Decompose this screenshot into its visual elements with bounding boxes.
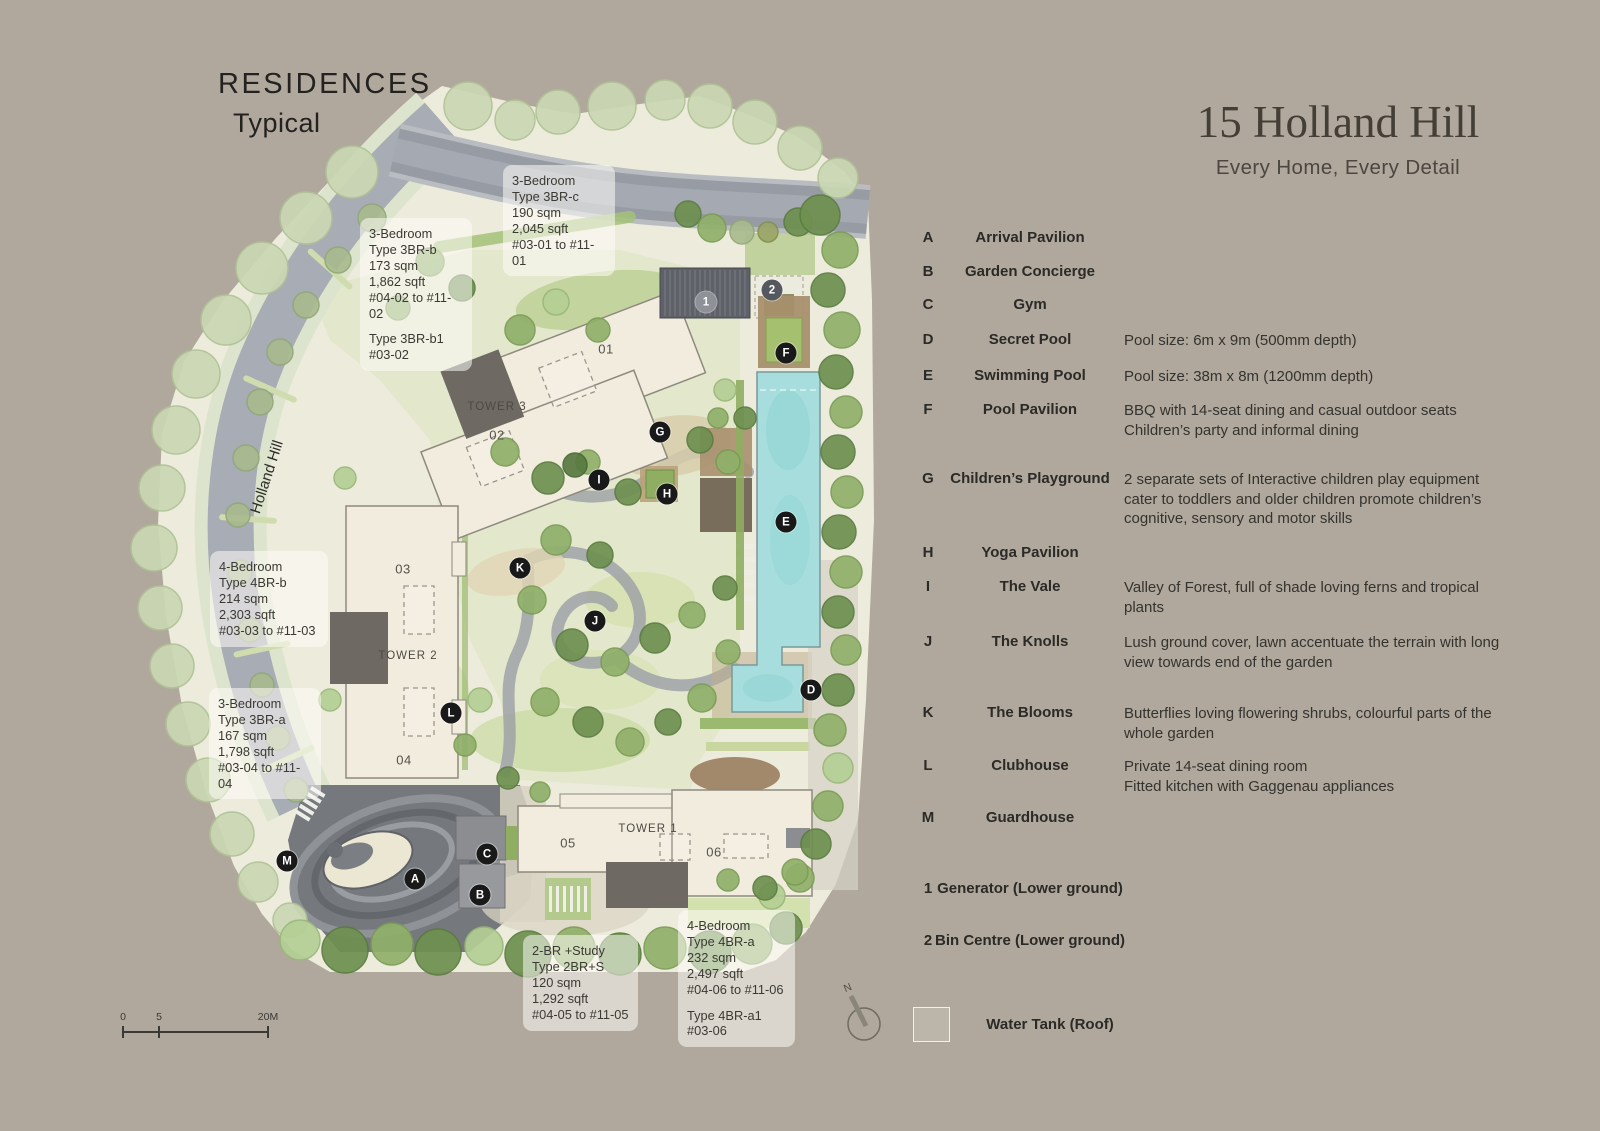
tree-icon (322, 927, 368, 973)
tree-icon (675, 201, 701, 227)
tree-icon (831, 635, 861, 665)
tree-icon (830, 556, 862, 588)
tree-icon (713, 576, 737, 600)
brand-logo: 15 Holland Hill (1190, 100, 1486, 145)
tree-icon (821, 435, 855, 469)
tree-icon (150, 644, 194, 688)
north-arrow-icon (830, 984, 894, 1048)
tree-icon (688, 684, 716, 712)
legend-description: Private 14-seat dining roomFitted kitche… (1124, 757, 1524, 796)
unit-callout-6: 4-BedroomType 4BR-a232 sqm2,497 sqft#04-… (678, 910, 795, 1047)
tower-2-building (330, 506, 466, 778)
map-marker-G: G (650, 422, 671, 443)
tree-icon (495, 100, 535, 140)
scale-tick (122, 1026, 124, 1038)
page-header: RESIDENCES Typical (218, 68, 432, 139)
unit-callout-2: 3-BedroomType 3BR-b173 sqm1,862 sqft#04-… (360, 218, 472, 371)
hedge (506, 826, 517, 860)
tree-icon (325, 247, 351, 273)
tree-icon (758, 222, 778, 242)
tree-icon (716, 640, 740, 664)
tree-icon (280, 192, 332, 244)
tree-icon (811, 273, 845, 307)
tree-icon (824, 312, 860, 348)
legend-description: Lush ground cover, lawn accentuate the t… (1124, 633, 1524, 672)
tree-icon (717, 869, 739, 891)
unit-number: 02 (489, 428, 504, 443)
tree-icon (293, 292, 319, 318)
tree-icon (415, 929, 461, 975)
tower-label: TOWER 3 (467, 401, 526, 413)
unit-number: 01 (598, 342, 613, 357)
map-marker-K: K (510, 558, 531, 579)
legend-name: Clubhouse (930, 757, 1130, 774)
legend-name: Bin Centre (Lower ground) (930, 932, 1130, 949)
crosswalk (545, 878, 591, 920)
map-marker-F: F (776, 343, 797, 364)
callout-line (687, 998, 786, 1008)
tree-icon (444, 82, 492, 130)
tree-icon (530, 782, 550, 802)
tree-icon (698, 214, 726, 242)
callout-line: #03-06 (687, 1023, 786, 1039)
tree-icon (573, 707, 603, 737)
tree-icon (172, 350, 220, 398)
callout-line: #03-01 to #11-01 (512, 237, 606, 269)
callout-line: 232 sqm (687, 950, 786, 966)
tree-icon (138, 586, 182, 630)
tree-icon (280, 920, 320, 960)
tree-icon (813, 791, 843, 821)
tree-icon (201, 295, 251, 345)
callout-line: #04-02 to #11-02 (369, 290, 463, 322)
legend-name: Garden Concierge (930, 263, 1130, 280)
legend-description: BBQ with 14-seat dining and casual outdo… (1124, 401, 1524, 440)
callout-line: 2,045 sqft (512, 221, 606, 237)
map-marker-B: B (470, 885, 491, 906)
tree-icon (166, 702, 210, 746)
tree-icon (131, 525, 177, 571)
tree-icon (334, 467, 356, 489)
tree-icon (556, 629, 588, 661)
tree-icon (730, 220, 754, 244)
scale-tick (267, 1026, 269, 1038)
tree-icon (543, 289, 569, 315)
tree-icon (465, 927, 503, 965)
lawn (745, 233, 815, 275)
tree-icon (655, 709, 681, 735)
callout-line: Type 2BR+S (532, 959, 629, 975)
callout-line: #03-04 to #11-04 (218, 760, 312, 792)
callout-line: 173 sqm (369, 258, 463, 274)
legend-description: Butterflies loving flowering shrubs, col… (1124, 704, 1524, 743)
tree-icon (532, 462, 564, 494)
scale-label-20m: 20M (258, 1011, 278, 1023)
legend-name: Arrival Pavilion (930, 229, 1130, 246)
callout-line: Type 3BR-b1 (369, 331, 463, 347)
callout-line: 4-Bedroom (687, 918, 786, 934)
map-marker-M: M (277, 851, 298, 872)
callout-line: 120 sqm (532, 975, 629, 991)
tree-icon (688, 84, 732, 128)
tree-icon (152, 406, 200, 454)
legend-name: Children’s Playground (930, 470, 1130, 487)
legend-name: Yoga Pavilion (930, 544, 1130, 561)
tree-icon (233, 445, 259, 471)
tree-icon (139, 465, 185, 511)
tree-icon (247, 389, 273, 415)
legend-description: 2 separate sets of Interactive children … (1124, 470, 1524, 529)
water-tank-label: Water Tank (Roof) (950, 1016, 1150, 1033)
tree-icon (497, 767, 519, 789)
tree-icon (679, 602, 705, 628)
tree-icon (645, 80, 685, 120)
callout-line: Type 3BR-c (512, 189, 606, 205)
unit-number: 04 (396, 753, 411, 768)
unit-callout-4: 3-BedroomType 3BR-a167 sqm1,798 sqft#03-… (209, 688, 321, 799)
tree-icon (586, 318, 610, 342)
callout-line: 3-Bedroom (218, 696, 312, 712)
tree-icon (588, 82, 636, 130)
unit-callout-5: 2-BR +StudyType 2BR+S120 sqm1,292 sqft#0… (523, 935, 638, 1031)
page-title: RESIDENCES (218, 68, 432, 101)
unit-callout-3: 4-BedroomType 4BR-b214 sqm2,303 sqft#03-… (210, 551, 328, 647)
callout-line: 2,497 sqft (687, 966, 786, 982)
tree-icon (616, 728, 644, 756)
tree-icon (733, 100, 777, 144)
tree-icon (541, 525, 571, 555)
tree-icon (714, 379, 736, 401)
tree-icon (716, 450, 740, 474)
callout-line: 1,292 sqft (532, 991, 629, 1007)
callout-line: 167 sqm (218, 728, 312, 744)
map-marker-E: E (776, 512, 797, 533)
tree-icon (454, 734, 476, 756)
tree-icon (226, 503, 250, 527)
tree-icon (818, 158, 858, 198)
map-marker-D: D (801, 680, 822, 701)
tree-icon (236, 242, 288, 294)
map-marker-H: H (657, 484, 678, 505)
page: RESIDENCES Typical 15 Holland Hill Every… (0, 0, 1600, 1131)
tree-icon (778, 126, 822, 170)
tree-icon (830, 396, 862, 428)
tree-icon (531, 688, 559, 716)
tree-icon (822, 674, 854, 706)
callout-line: 214 sqm (219, 591, 319, 607)
legend-name: Swimming Pool (930, 367, 1130, 384)
callout-line: 1,862 sqft (369, 274, 463, 290)
tree-icon (801, 829, 831, 859)
tree-icon (319, 689, 341, 711)
callout-line: Type 4BR-a (687, 934, 786, 950)
tree-icon (615, 479, 641, 505)
legend-name: The Knolls (930, 633, 1130, 650)
compass: N (830, 984, 894, 1048)
callout-line: 3-Bedroom (369, 226, 463, 242)
tree-icon (819, 355, 853, 389)
tree-icon (371, 923, 413, 965)
callout-line: 190 sqm (512, 205, 606, 221)
legend-description: Pool size: 38m x 8m (1200mm depth) (1124, 367, 1524, 387)
callout-line: Type 3BR-a (218, 712, 312, 728)
pool-deck (700, 478, 752, 532)
tree-icon (822, 232, 858, 268)
callout-line: Type 4BR-a1 (687, 1008, 786, 1024)
tree-icon (267, 339, 293, 365)
map-marker-I: I (589, 470, 610, 491)
brand-tagline: Every Home, Every Detail (1190, 156, 1486, 180)
legend-description: Pool size: 6m x 9m (500mm depth) (1124, 331, 1524, 351)
brand-block: 15 Holland Hill Every Home, Every Detail (1190, 100, 1486, 180)
tree-icon (326, 146, 378, 198)
tree-icon (831, 476, 863, 508)
tree-icon (734, 407, 756, 429)
tree-icon (505, 315, 535, 345)
legend-name: Guardhouse (930, 809, 1130, 826)
callout-line: 1,798 sqft (218, 744, 312, 760)
callout-line (369, 321, 463, 331)
tree-icon (536, 90, 580, 134)
tree-icon (238, 862, 278, 902)
tree-icon (640, 623, 670, 653)
legend-name: The Vale (930, 578, 1130, 595)
legend-name: Gym (930, 296, 1130, 313)
callout-line: #03-02 (369, 347, 463, 363)
tree-icon (823, 753, 853, 783)
map-marker-C: C (477, 844, 498, 865)
callout-line: 3-Bedroom (512, 173, 606, 189)
legend-name: Secret Pool (930, 331, 1130, 348)
tree-icon (518, 586, 546, 614)
map-marker-J: J (585, 611, 606, 632)
map-marker-2: 2 (762, 280, 783, 301)
callout-line: #04-06 to #11-06 (687, 982, 786, 998)
callout-line: 4-Bedroom (219, 559, 319, 575)
hedge (700, 718, 816, 729)
hedge (706, 742, 810, 751)
tower-label: TOWER 1 (618, 823, 677, 835)
map-marker-1: 1 (696, 292, 717, 313)
callout-line: 2,303 sqft (219, 607, 319, 623)
callout-line: #03-03 to #11-03 (219, 623, 319, 639)
tree-icon (708, 408, 728, 428)
unit-number: 05 (560, 836, 575, 851)
unit-number: 03 (395, 562, 410, 577)
scale-tick (158, 1026, 160, 1038)
tree-icon (587, 542, 613, 568)
tree-icon (563, 453, 587, 477)
unit-number: 06 (706, 845, 721, 860)
tree-icon (687, 427, 713, 453)
map-marker-A: A (405, 869, 426, 890)
map-marker-L: L (441, 703, 462, 724)
tree-icon (601, 648, 629, 676)
water-tank-symbol (913, 1007, 950, 1042)
scale-line (122, 1031, 269, 1033)
tree-icon (210, 812, 254, 856)
tree-icon (782, 859, 808, 885)
tree-icon (800, 195, 840, 235)
callout-line: #04-05 to #11-05 (532, 1007, 629, 1023)
tower-label: TOWER 2 (378, 650, 437, 662)
tree-icon (822, 596, 854, 628)
callout-line: Type 3BR-b (369, 242, 463, 258)
legend-name: The Blooms (930, 704, 1130, 721)
terrain-patch (690, 757, 780, 793)
legend-name: Pool Pavilion (930, 401, 1130, 418)
tree-icon (814, 714, 846, 746)
scale-label-0: 0 (120, 1011, 126, 1023)
tree-icon (753, 876, 777, 900)
legend-description: Valley of Forest, full of shade loving f… (1124, 578, 1524, 617)
callout-line: 2-BR +Study (532, 943, 629, 959)
page-subtitle: Typical (233, 108, 432, 139)
scale-label-5: 5 (156, 1011, 162, 1023)
legend-name: Generator (Lower ground) (930, 880, 1130, 897)
unit-callout-1: 3-BedroomType 3BR-c190 sqm2,045 sqft#03-… (503, 165, 615, 276)
tree-icon (468, 688, 492, 712)
callout-line: Type 4BR-b (219, 575, 319, 591)
tree-icon (822, 515, 856, 549)
